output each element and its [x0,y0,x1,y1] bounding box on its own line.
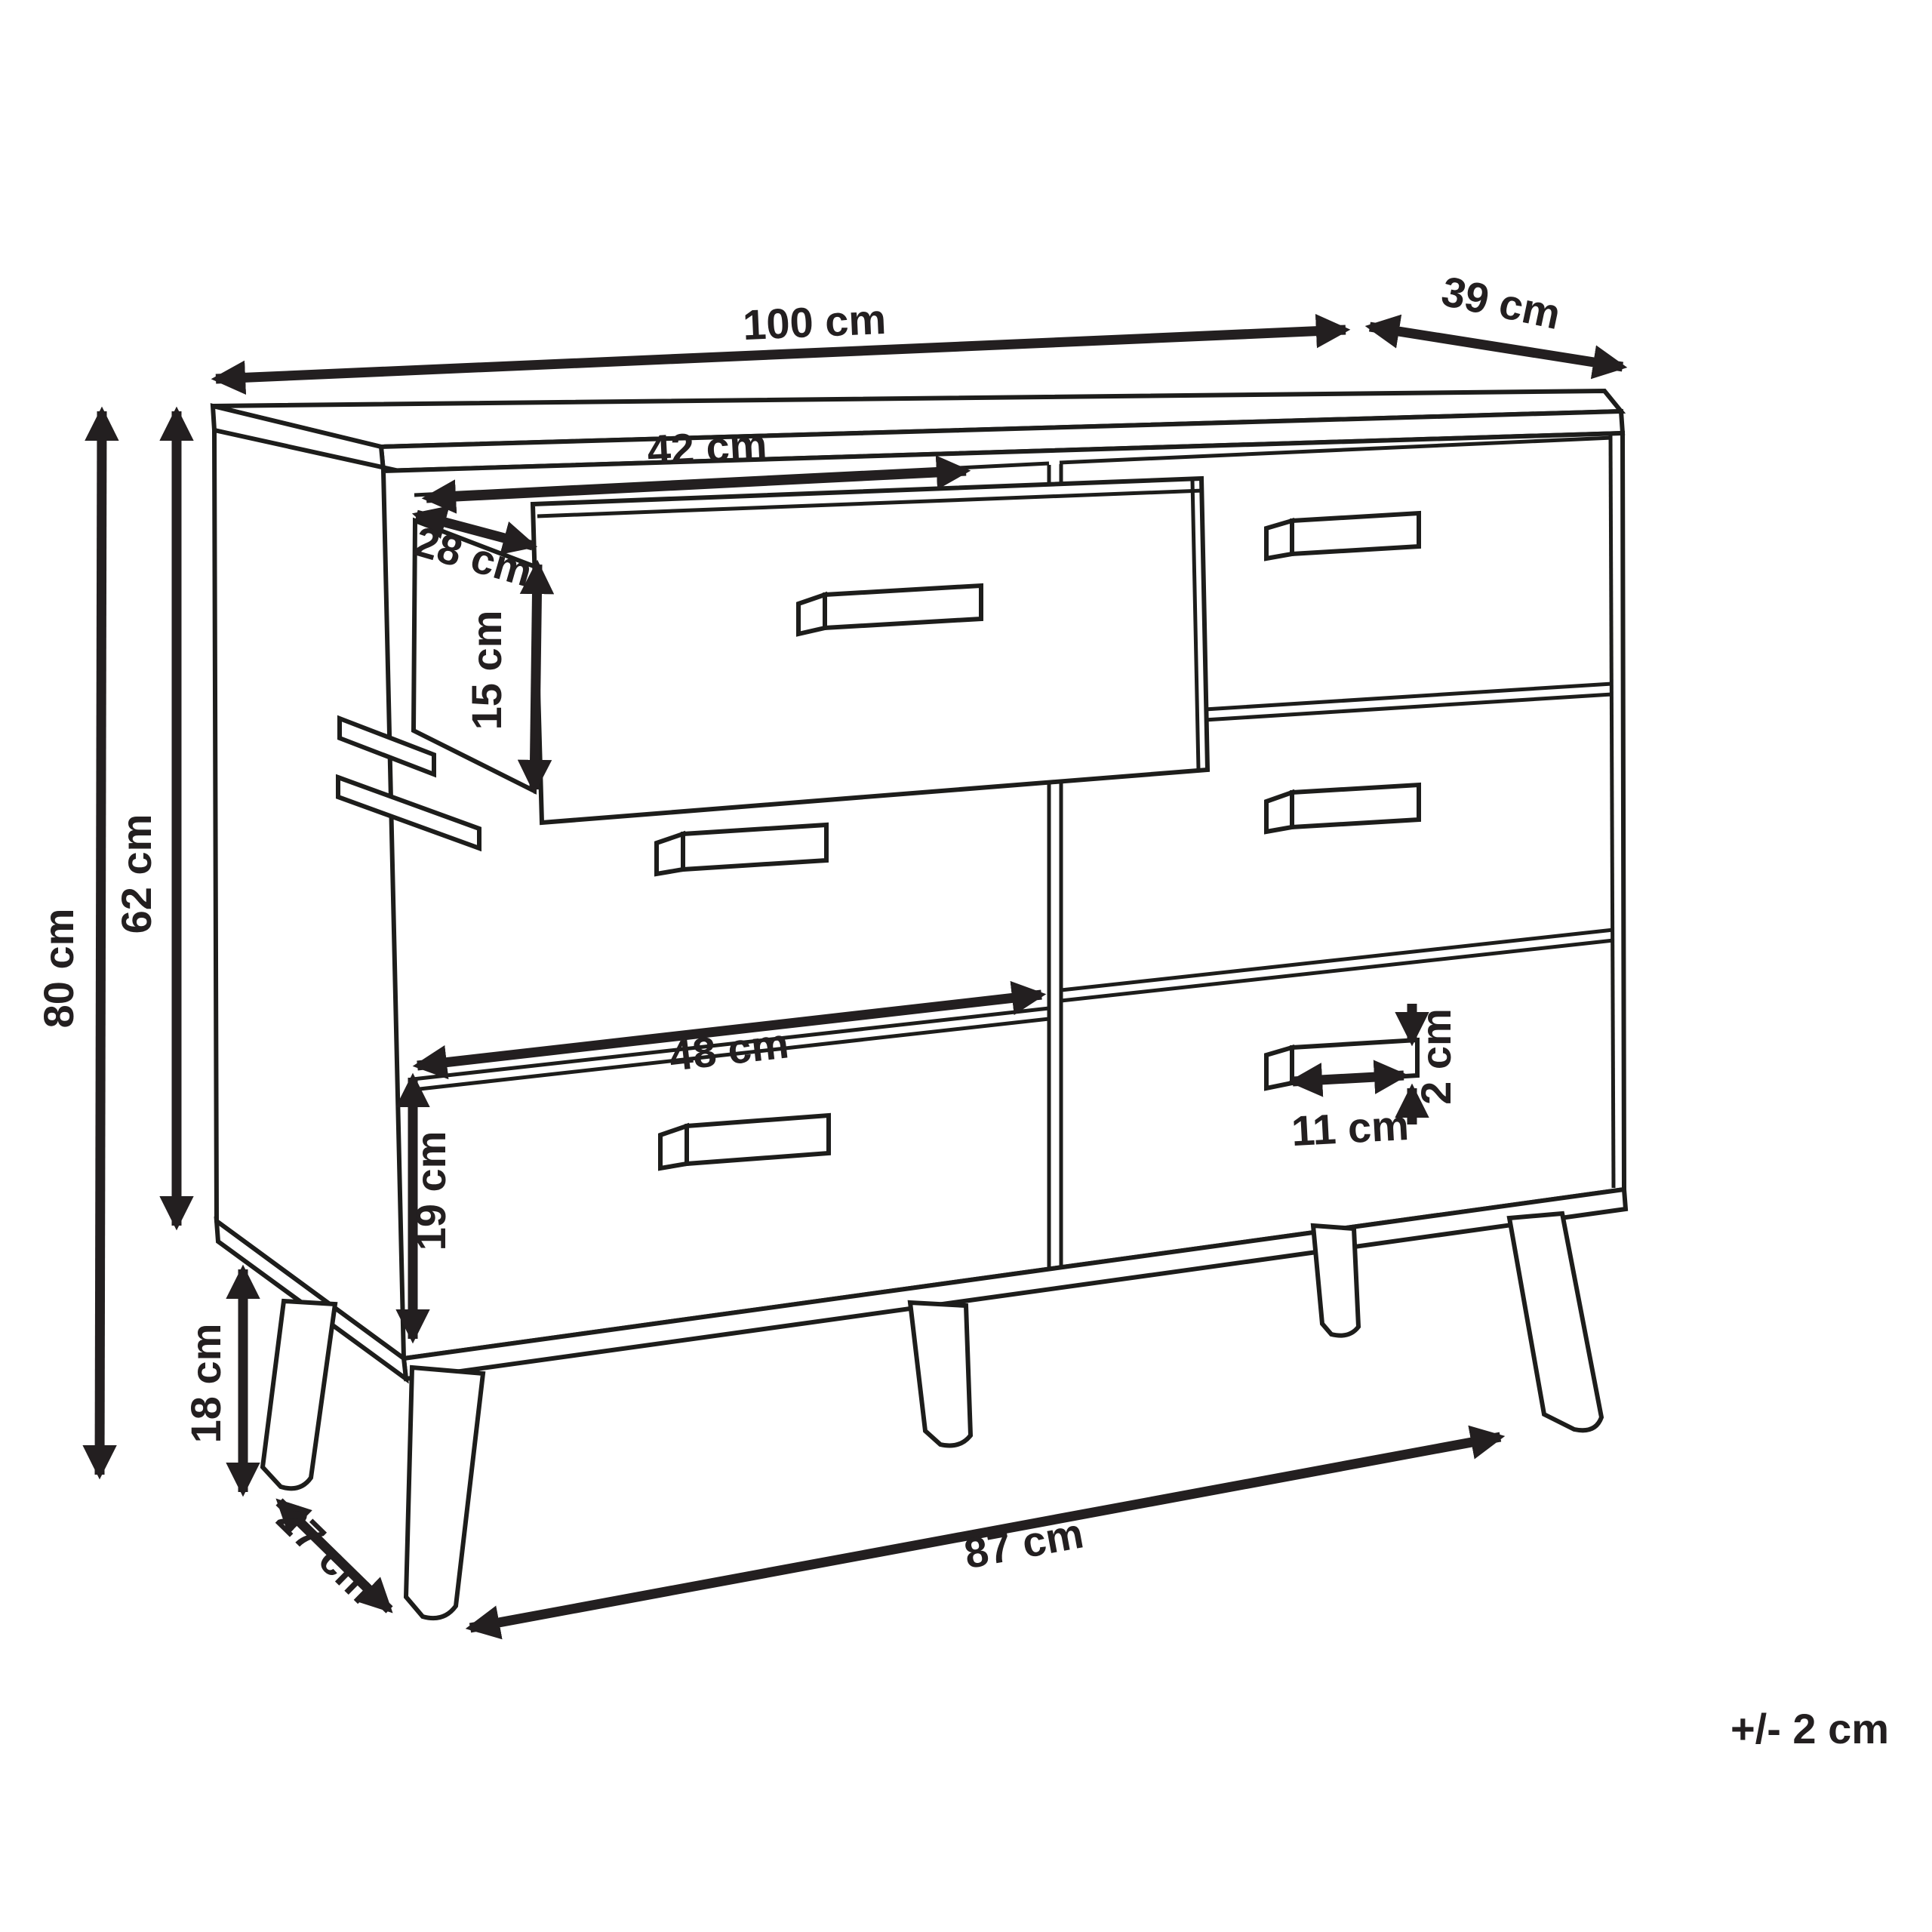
label-handle-width: 11 cm [1291,1101,1411,1155]
label-carcass-height: 62 cm [112,814,160,934]
label-handle-height: 2 cm [1412,1008,1460,1105]
dim-arrow-depth [1370,327,1623,367]
dim-arrow-overall-height [100,411,102,1475]
handle-front [1292,785,1419,827]
handle-end-cap [1266,1048,1292,1088]
dim-arrow-handle-width [1293,1075,1404,1081]
handle-end-cap [1266,521,1292,558]
label-open-drawer-width: 42 cm [646,420,768,474]
label-open-drawer-height: 15 cm [463,611,510,731]
open-drawer-front-panel [533,478,1207,823]
leg-front-left [406,1367,483,1618]
handle-end-cap [798,595,825,634]
label-overall-width: 100 cm [742,295,888,349]
chest-of-drawers-diagram: 100 cm 39 cm 42 cm 28 cm 15 cm 62 cm 80 … [0,0,1932,1932]
label-leg-inset-depth: 27 cm [268,1494,386,1612]
leg-front-right [1509,1214,1601,1430]
label-depth: 39 cm [1438,267,1564,339]
tolerance-note: +/- 2 cm [1730,1705,1889,1752]
handle-front [825,586,981,628]
label-leg-height: 18 cm [182,1324,229,1444]
leg-back-right [1313,1226,1358,1336]
cabinet-left-side [214,430,413,1358]
label-bottom-drawer-height: 19 cm [407,1131,454,1251]
handle-front [1292,513,1419,554]
handle-end-cap [660,1126,687,1168]
handle-front [683,825,826,869]
label-overall-height: 80 cm [35,909,82,1029]
handle-front [687,1115,829,1164]
leg-front-center [910,1303,971,1446]
leg-back-left [263,1301,335,1488]
label-leg-span-width: 87 cm [961,1509,1088,1577]
handle-end-cap [1266,792,1292,832]
dim-arrow-open-drawer-height [534,565,537,789]
handle-end-cap [657,834,683,874]
dimension-diagram-page: 100 cm 39 cm 42 cm 28 cm 15 cm 62 cm 80 … [0,0,1932,1932]
